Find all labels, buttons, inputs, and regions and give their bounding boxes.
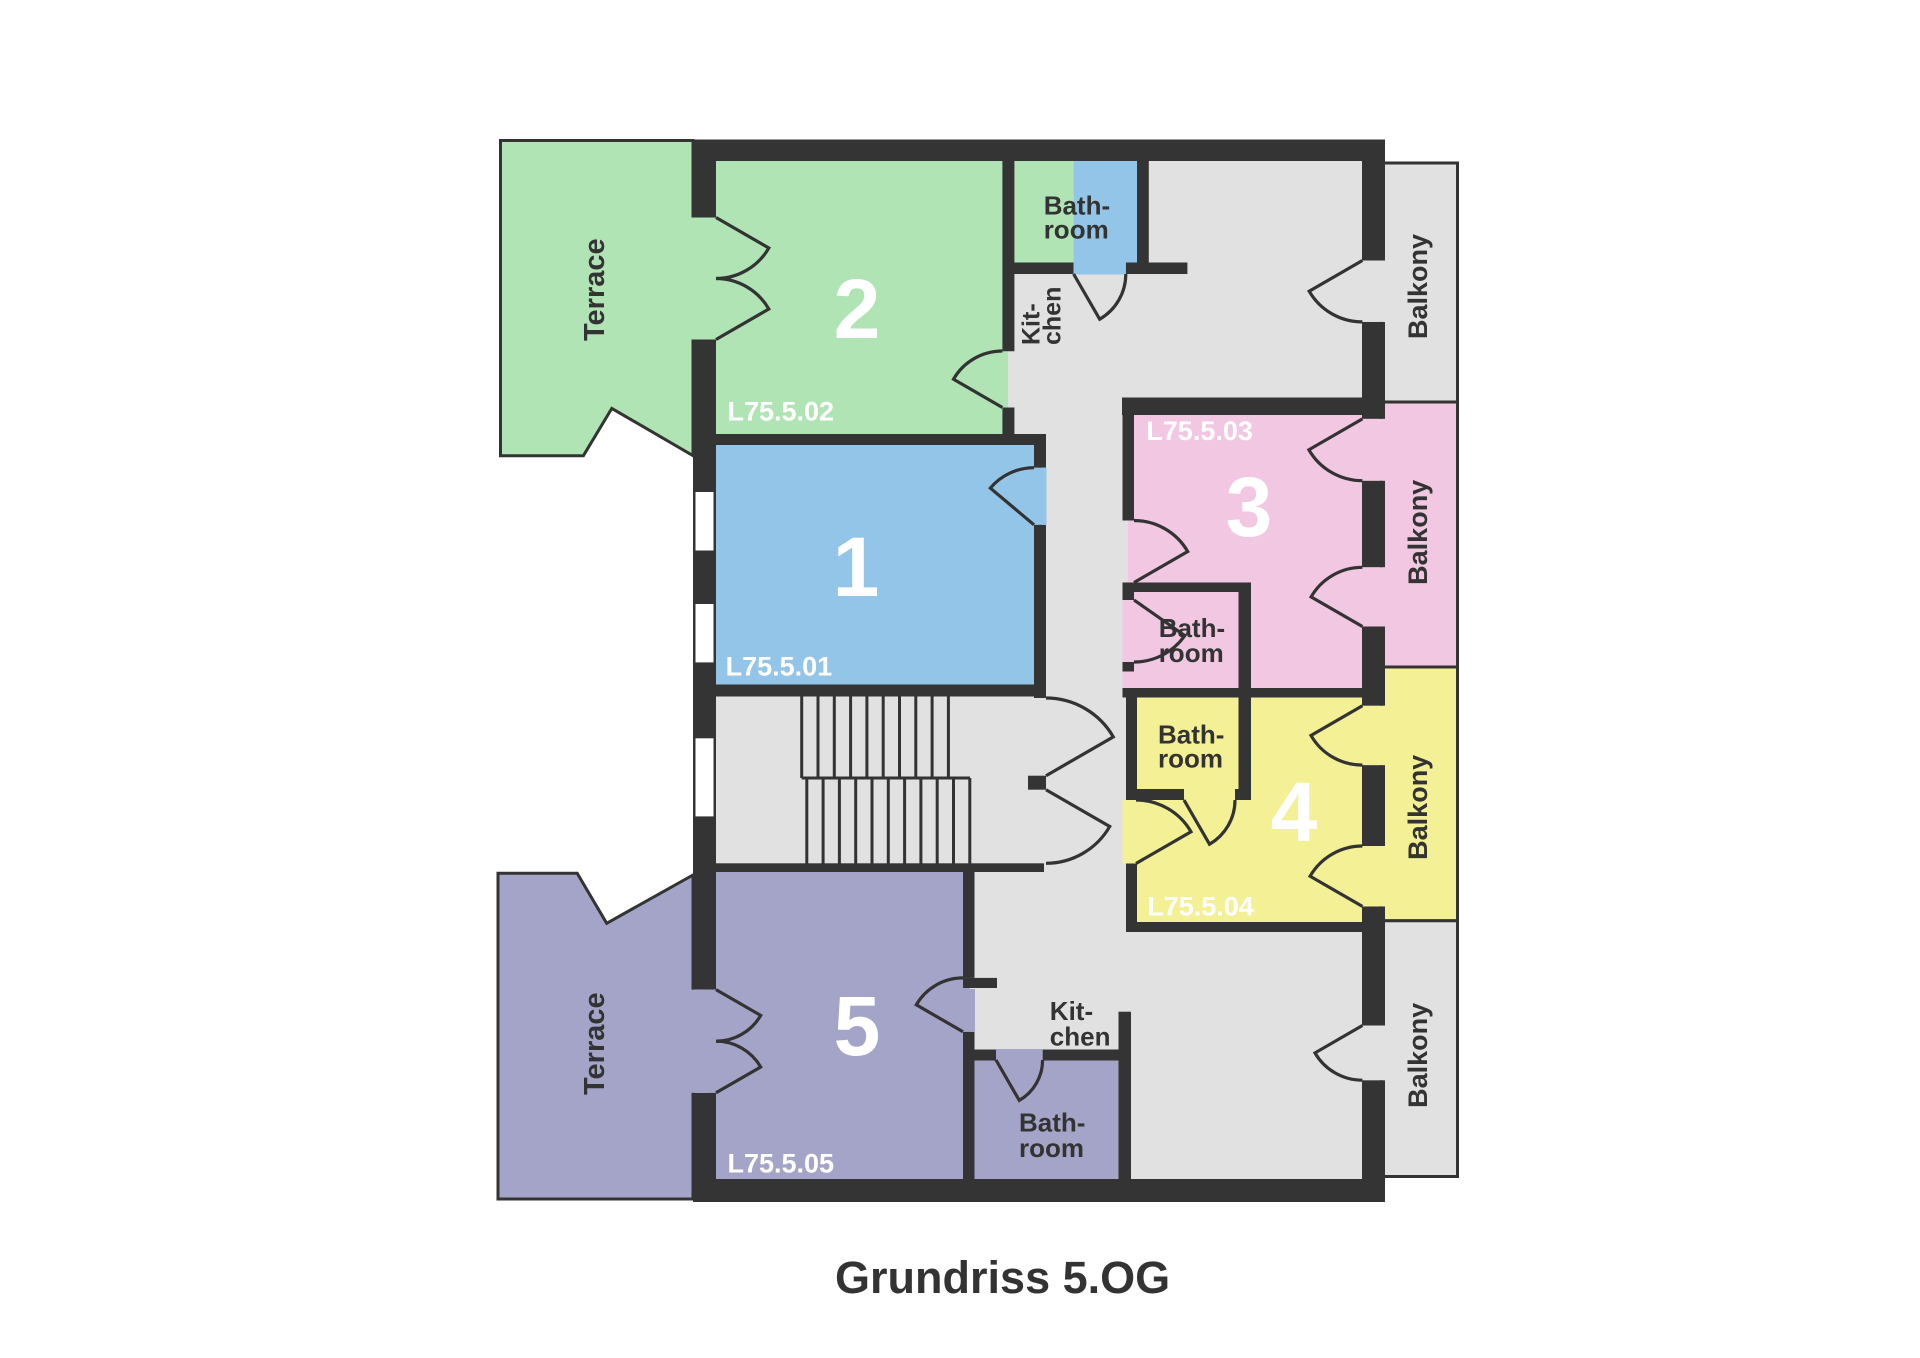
svg-text:L75.5.03: L75.5.03: [1146, 416, 1253, 446]
svg-text:Grundriss 5.OG: Grundriss 5.OG: [835, 1252, 1170, 1303]
svg-text:Terrace: Terrace: [579, 992, 611, 1095]
svg-text:Balkony: Balkony: [1403, 1003, 1433, 1108]
svg-text:L75.5.05: L75.5.05: [728, 1148, 835, 1178]
svg-text:L75.5.02: L75.5.02: [728, 396, 835, 426]
svg-text:room: room: [1019, 1133, 1084, 1163]
svg-text:1: 1: [833, 520, 880, 614]
svg-text:chen: chen: [1050, 1022, 1111, 1052]
svg-text:Balkony: Balkony: [1403, 480, 1433, 585]
svg-text:room: room: [1159, 638, 1224, 668]
svg-text:Terrace: Terrace: [579, 238, 611, 341]
svg-text:Balkony: Balkony: [1403, 755, 1433, 860]
svg-text:room: room: [1158, 744, 1223, 774]
svg-text:L75.5.04: L75.5.04: [1147, 892, 1254, 922]
svg-text:2: 2: [834, 262, 881, 356]
svg-text:5: 5: [834, 979, 881, 1073]
svg-text:L75.5.01: L75.5.01: [726, 651, 833, 681]
svg-text:Balkony: Balkony: [1403, 234, 1433, 339]
svg-text:3: 3: [1226, 460, 1273, 554]
svg-text:room: room: [1044, 214, 1109, 244]
svg-text:4: 4: [1271, 765, 1318, 859]
